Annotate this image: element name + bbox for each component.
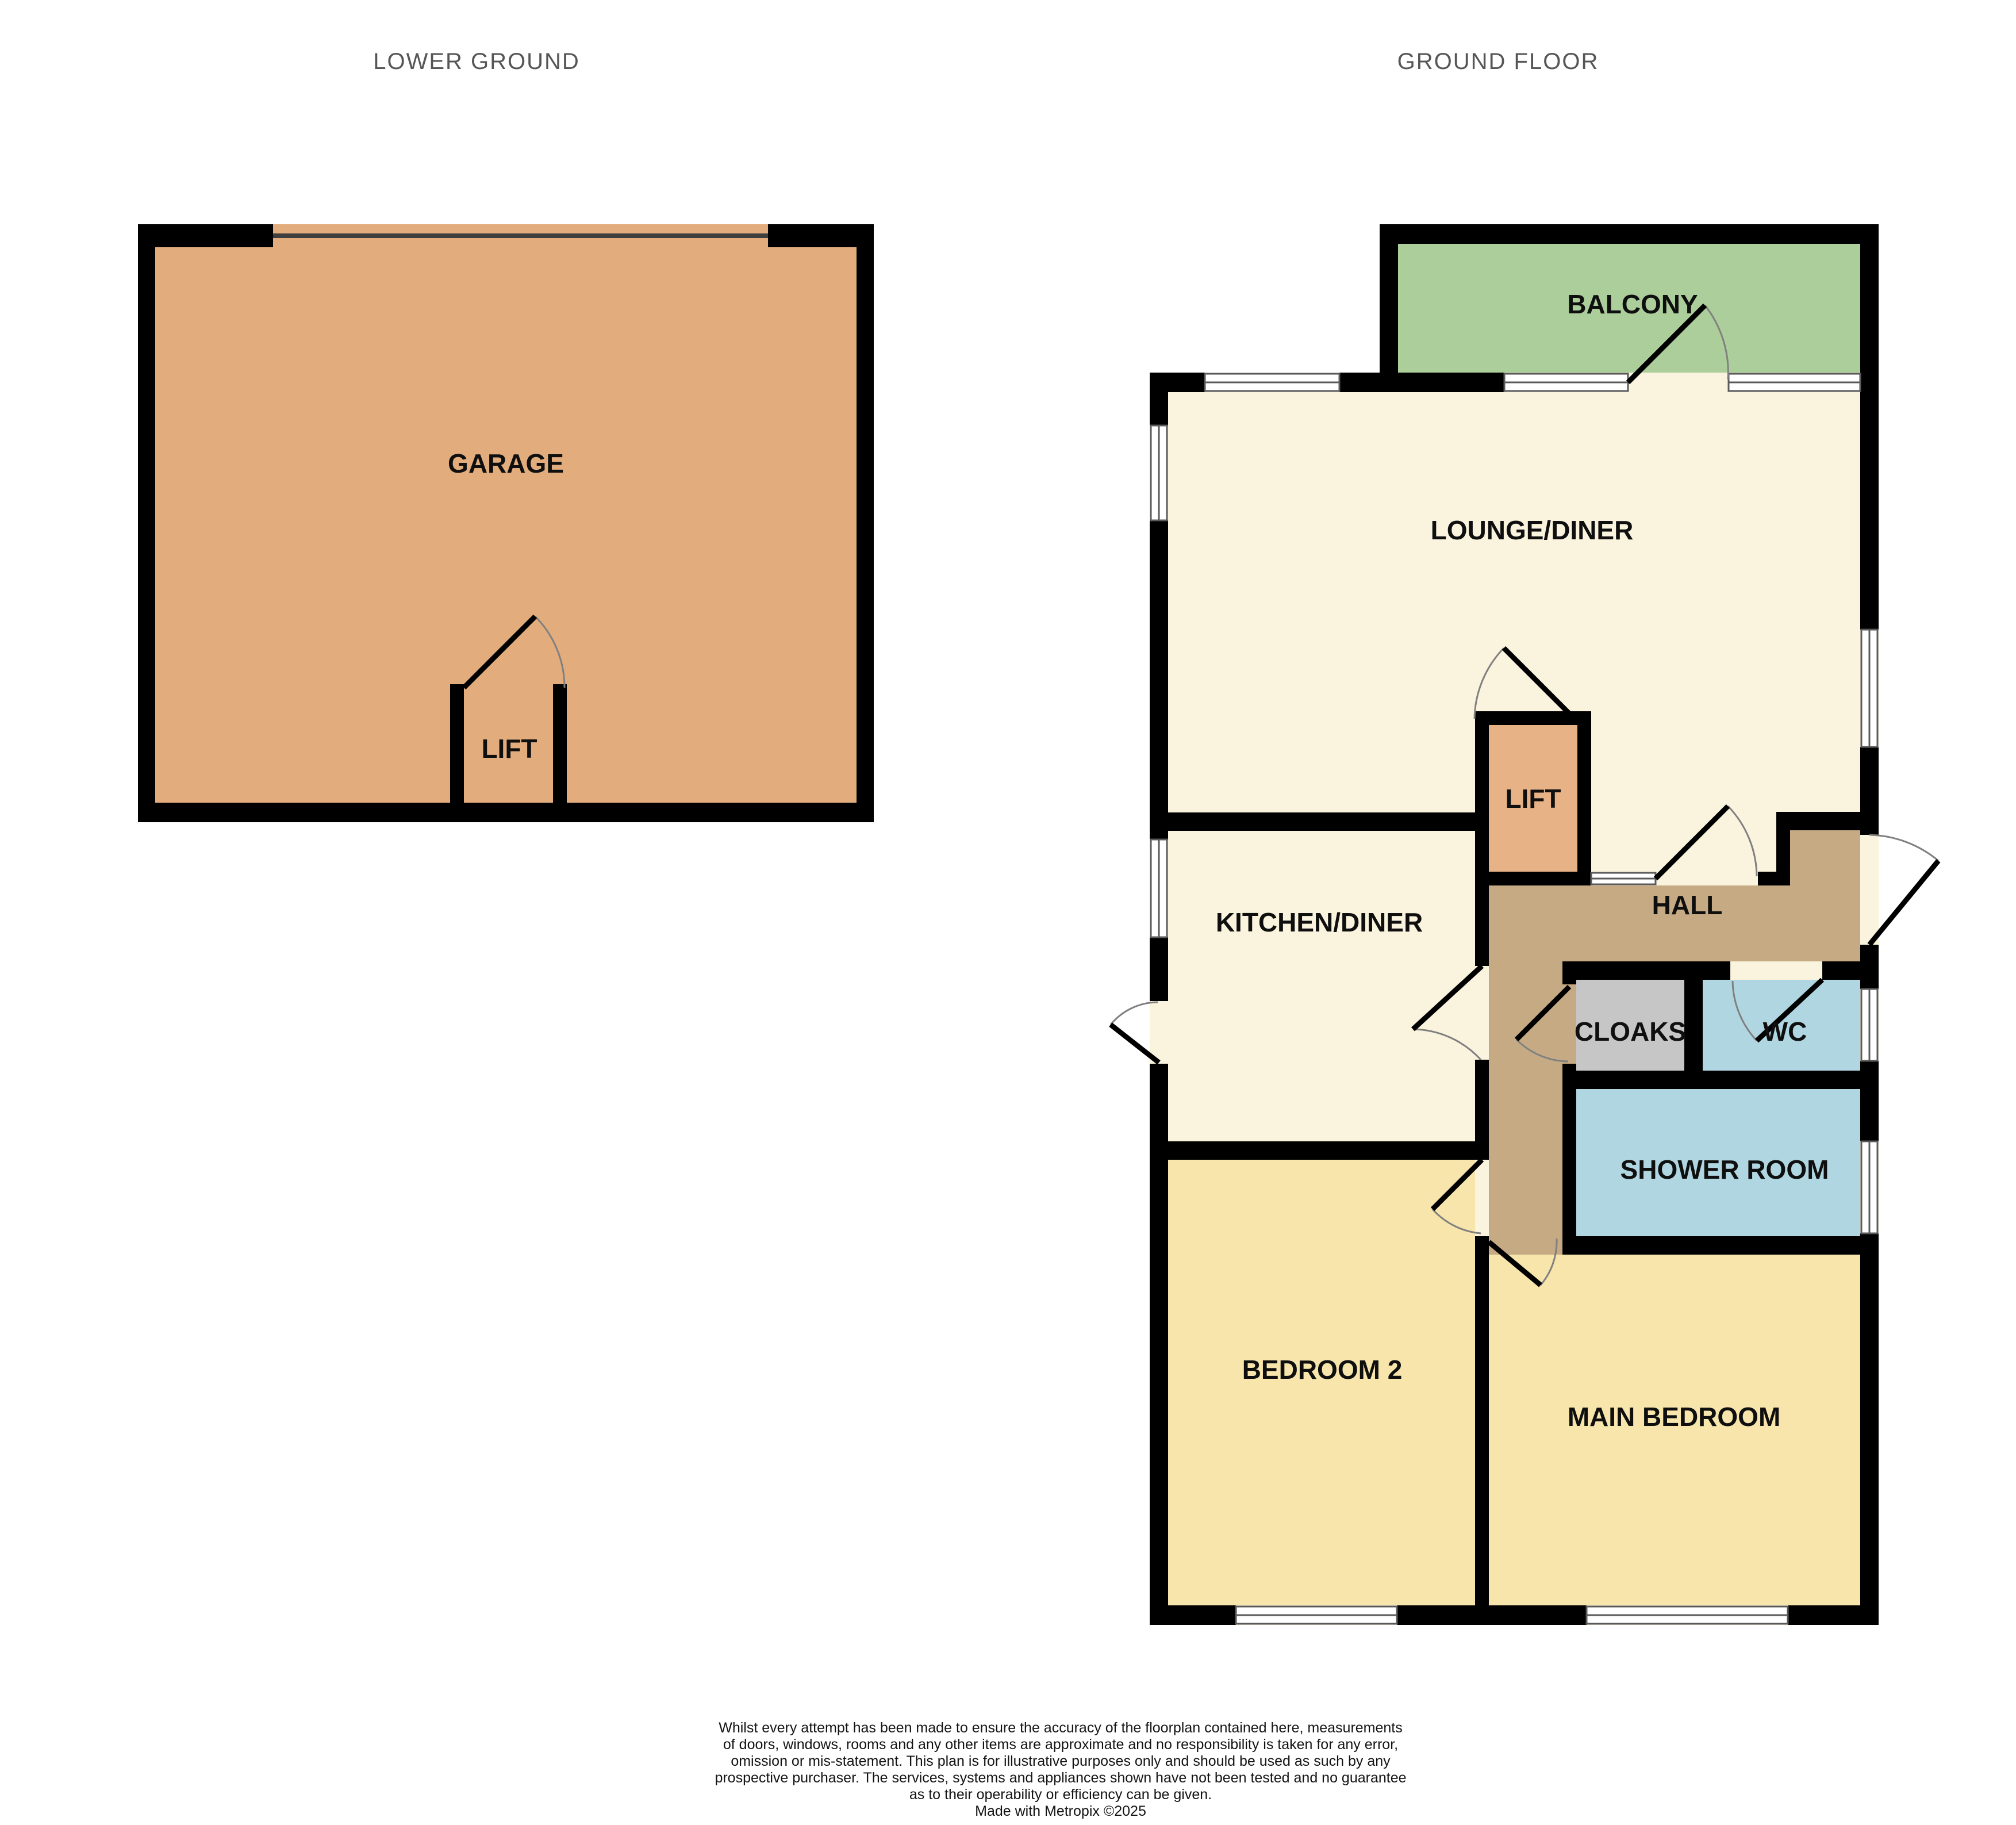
window-wc-right [1861, 989, 1877, 1061]
opening-hall-threshold [1591, 873, 1656, 884]
window-balcony-right [1729, 374, 1860, 391]
garage-label: GARAGE [448, 448, 564, 478]
disclaimer-line: omission or mis-statement. This plan is … [731, 1753, 1391, 1769]
lower-ground-plan: GARAGE LIFT [138, 224, 874, 822]
window-balcony-left [1504, 374, 1628, 391]
floorplan-page: LOWER GROUND GROUND FLOOR GARAGE LIFT [0, 0, 2016, 1825]
window-lounge-left [1151, 425, 1167, 520]
window-main-bedroom-bottom [1587, 1607, 1788, 1624]
shower-room-label: SHOWER ROOM [1621, 1155, 1829, 1184]
window-lounge-right [1861, 630, 1877, 747]
window-kitchen-left [1151, 839, 1167, 937]
floorplan-canvas: LOWER GROUND GROUND FLOOR GARAGE LIFT [0, 0, 2016, 1825]
lift-ground-label: LIFT [1505, 784, 1561, 814]
disclaimer-line: as to their operability or efficiency ca… [909, 1786, 1212, 1803]
disclaimer-line: of doors, windows, rooms and any other i… [723, 1736, 1398, 1753]
room-garage [138, 224, 874, 822]
window-shower-right [1861, 1141, 1877, 1233]
balcony-label: BALCONY [1567, 289, 1698, 319]
main-bedroom-label: MAIN BEDROOM [1568, 1402, 1781, 1432]
ground-floor-title: GROUND FLOOR [1397, 49, 1599, 74]
bedroom-2-label: BEDROOM 2 [1242, 1355, 1403, 1385]
lower-ground-title: LOWER GROUND [373, 49, 580, 74]
disclaimer-metropix-credit: Made with Metropix ©2025 [975, 1803, 1146, 1819]
wc-label: WC [1763, 1017, 1807, 1046]
lounge-diner-label: LOUNGE/DINER [1431, 515, 1634, 545]
hall-label: HALL [1652, 890, 1723, 920]
kitchen-diner-label: KITCHEN/DINER [1216, 907, 1423, 937]
entrance-door-icon [1869, 835, 1938, 945]
lift-lower-label: LIFT [481, 734, 537, 764]
ground-floor-plan: BALCONY LOUNGE/DINER LIFT KITCHEN/DINER … [1111, 224, 1938, 1625]
disclaimer-line: prospective purchaser. The services, sys… [715, 1770, 1406, 1786]
garage-door-line [273, 233, 768, 238]
disclaimer-line: Whilst every attempt has been made to en… [719, 1720, 1403, 1736]
window-lounge-top-left [1205, 374, 1339, 391]
window-bedroom2-bottom [1236, 1607, 1397, 1624]
disclaimer: Whilst every attempt has been made to en… [715, 1720, 1406, 1819]
cloaks-label: CLOAKS [1575, 1017, 1686, 1046]
